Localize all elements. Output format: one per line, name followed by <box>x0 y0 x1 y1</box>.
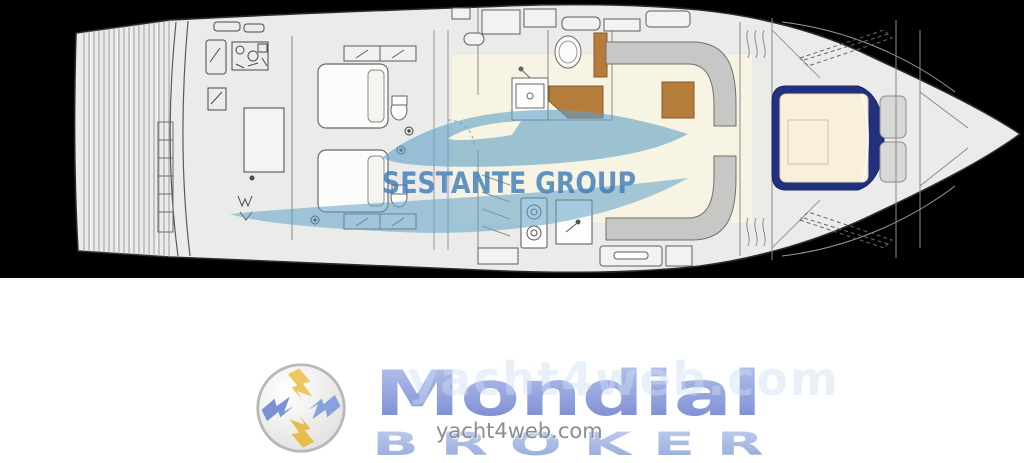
logo-title-wrap: Mondial <box>368 358 768 428</box>
pinwheel-lightning-emblem-icon <box>254 360 348 456</box>
wood-vanity <box>594 33 607 77</box>
deck-hatch-top <box>344 46 416 61</box>
owner-bed-mattress <box>780 94 868 182</box>
crew-toilet-1 <box>391 96 407 120</box>
site-watermark: yacht4web.com <box>436 419 586 443</box>
yacht-listing-image: SESTANTE GROUP Mondial B R O K E <box>0 0 1024 463</box>
twin-bed-1-pillow <box>368 70 384 122</box>
salon-wood-table <box>662 82 694 118</box>
plan-background-band: SESTANTE GROUP <box>0 0 1024 278</box>
bed-pillow-2 <box>880 142 906 182</box>
brand-watermark-text: SESTANTE GROUP <box>382 166 636 200</box>
logo-title: Mondial <box>374 358 762 428</box>
bed-pillow-1 <box>880 96 906 138</box>
yacht-deck-plan: SESTANTE GROUP <box>0 0 1024 278</box>
